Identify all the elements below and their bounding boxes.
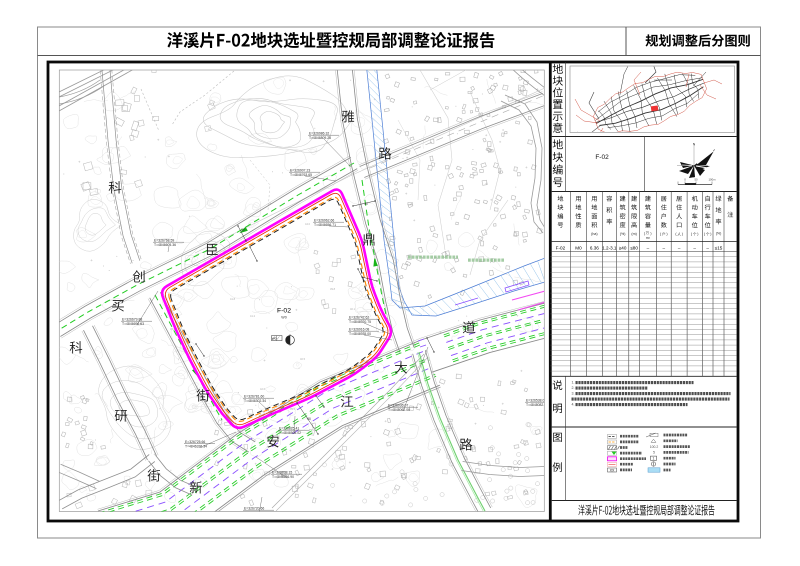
svg-text:50: 50 [307,417,311,421]
svg-text:≤80: ≤80 [630,245,638,250]
svg-text:F-02: F-02 [556,245,566,250]
svg-text:XX: XX [610,469,615,473]
svg-text:–: – [693,245,696,250]
svg-text:E=326679.88: E=326679.88 [122,317,142,321]
svg-text:): ) [666,232,667,236]
svg-text:E=326742.62: E=326742.62 [349,315,369,319]
svg-text:–: – [706,245,709,250]
svg-text:≥40: ≥40 [619,245,627,250]
svg-text:T=4846763.65: T=4846763.65 [290,173,312,177]
svg-text:T=4846935.00: T=4846935.00 [349,332,371,336]
svg-text:≤15: ≤15 [715,245,723,250]
svg-text:E=326036.07: E=326036.07 [388,403,408,407]
svg-text:M0: M0 [575,245,582,250]
svg-text:E=326986.32: E=326986.32 [309,131,329,135]
svg-text:(%): (%) [716,232,722,236]
svg-text:41.8: 41.8 [230,297,236,301]
svg-text:39.8: 39.8 [330,287,336,291]
svg-text:–: – [663,245,666,250]
svg-text:E=326538.05: E=326538.05 [526,398,546,402]
svg-text:E=326720.66: E=326720.66 [244,506,264,510]
svg-text:F-02: F-02 [277,308,291,315]
svg-text:F-02: F-02 [595,154,609,161]
svg-text:T=4848062.06: T=4848062.06 [388,408,410,412]
svg-text:3.: 3. [572,392,575,396]
svg-text:T=4846505.02: T=4846505.02 [279,431,301,435]
svg-text:50: 50 [694,178,698,182]
svg-text:E=326781.60: E=326781.60 [244,394,264,398]
svg-text:41.2: 41.2 [250,314,256,318]
svg-text:T=4846656.71: T=4846656.71 [314,223,336,227]
svg-text:1.: 1. [572,381,575,385]
svg-text:T=4846302.34: T=4846302.34 [244,399,266,403]
svg-text:(ha): (ha) [591,232,597,236]
svg-text:40.5: 40.5 [300,357,306,361]
svg-text:44.0: 44.0 [305,222,311,226]
svg-text:5: 5 [653,451,655,455]
svg-text:E=326725.66: E=326725.66 [185,440,205,444]
svg-text:100m: 100m [709,178,717,182]
svg-text:4.: 4. [572,403,575,407]
svg-text:1: 1 [653,457,655,461]
svg-text:): ) [682,232,683,236]
svg-text:): ) [650,232,651,236]
svg-text:E=326825.41: E=326825.41 [279,426,299,430]
svg-text:T=4846336.34: T=4846336.34 [185,445,207,449]
svg-text:(%): (%) [620,232,626,236]
svg-text:–: – [647,245,650,250]
svg-text:E=326907.23: E=326907.23 [290,168,310,172]
svg-text:E=326768.59: E=326768.59 [154,238,174,242]
svg-text:T=4846696.63: T=4846696.63 [122,322,144,326]
svg-text:40.1: 40.1 [350,307,356,311]
svg-text:E=326916.08: E=326916.08 [349,327,369,331]
svg-text:T=4846809.28: T=4846809.28 [309,136,331,140]
svg-text:): ) [697,232,698,236]
svg-text:2.: 2. [572,386,575,390]
svg-text:T=4846286.90: T=4846286.90 [272,475,294,479]
svg-text:W0: W0 [272,337,277,341]
svg-text:42.6: 42.6 [260,387,266,391]
svg-text:E=326838.15: E=326838.15 [272,470,292,474]
svg-text:1.2-3.1: 1.2-3.1 [602,245,617,250]
svg-text:): ) [710,232,711,236]
svg-text:W0: W0 [281,316,286,320]
svg-text:–: – [678,245,681,250]
svg-text:39.5: 39.5 [290,407,296,411]
svg-text:6.36: 6.36 [590,245,599,250]
svg-text:(m): (m) [631,232,636,236]
svg-text:E=326962.66: E=326962.66 [314,218,334,222]
svg-text:30: 30 [364,202,368,206]
svg-text:30: 30 [241,228,245,232]
svg-text:T=4846605.36: T=4846605.36 [154,243,176,247]
svg-text:100.2: 100.2 [650,445,659,449]
svg-text:T=4846920.75: T=4846920.75 [349,320,371,324]
